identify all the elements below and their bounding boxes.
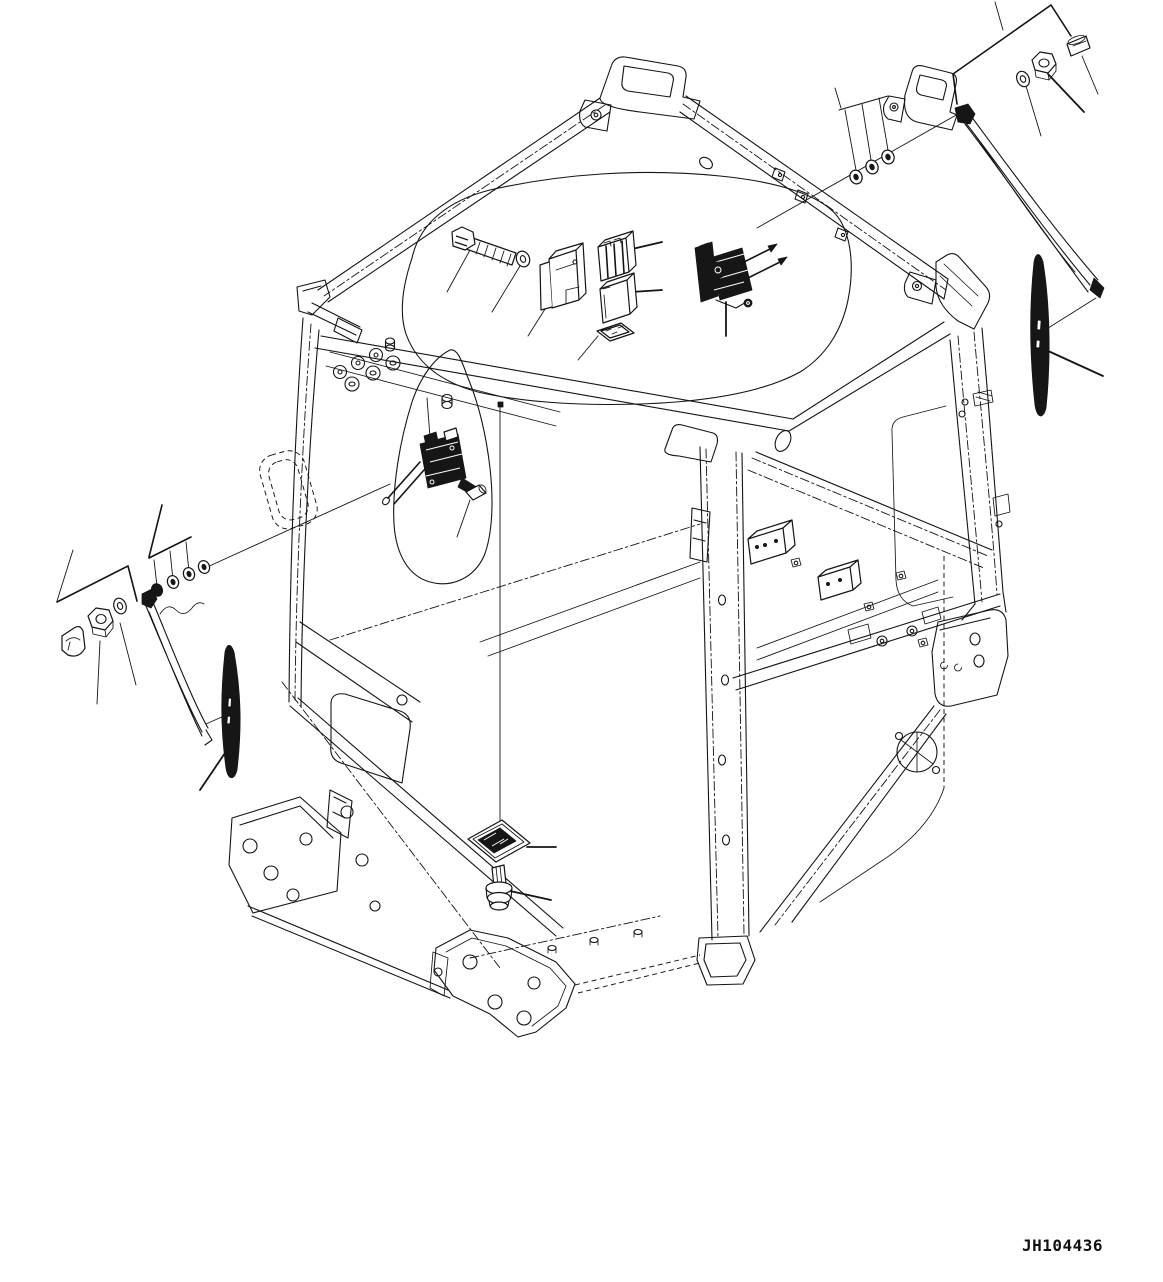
left-wiper-blade [222, 645, 240, 777]
right-wiper-arm [955, 104, 1104, 298]
center-pillar [665, 425, 794, 985]
wire-connector-plate [597, 323, 634, 341]
hex-bolt [452, 227, 516, 266]
right-hex-nut [1032, 52, 1056, 80]
interior-hardware [480, 520, 941, 993]
switch-plate [468, 820, 530, 862]
drawing-number: JH104436 [1022, 1236, 1103, 1255]
left-corner [297, 280, 362, 343]
parts-diagram-page: JH104436 [0, 0, 1163, 1282]
front-wiper-motor [695, 242, 787, 308]
construction-lines [282, 104, 997, 968]
left-clamp-cap [62, 627, 85, 657]
roof-rear-edge [315, 322, 950, 431]
right-wiper-blade [1031, 255, 1049, 416]
flat-washer [514, 249, 532, 268]
right-corner-post [904, 254, 989, 329]
left-wiper-arm [142, 589, 212, 745]
left-hex-nut [88, 608, 113, 637]
right-wall [733, 328, 1010, 932]
cab-frame [229, 57, 1010, 1037]
exploded-parts-diagram: JH104436 [0, 0, 1163, 1282]
grommet-bolt [486, 865, 512, 910]
relay-box-lower [600, 273, 637, 323]
lower-wiper-motor [381, 428, 482, 506]
relay-box-upper [598, 231, 636, 281]
left-base-plate [229, 790, 352, 913]
right-washer [1014, 69, 1032, 89]
left-washer [112, 596, 129, 615]
left-mount-washers [150, 559, 212, 598]
relay-bracket-cover [540, 243, 586, 310]
leader-lines [57, 2, 1103, 900]
right-cap-nut [1067, 34, 1090, 56]
